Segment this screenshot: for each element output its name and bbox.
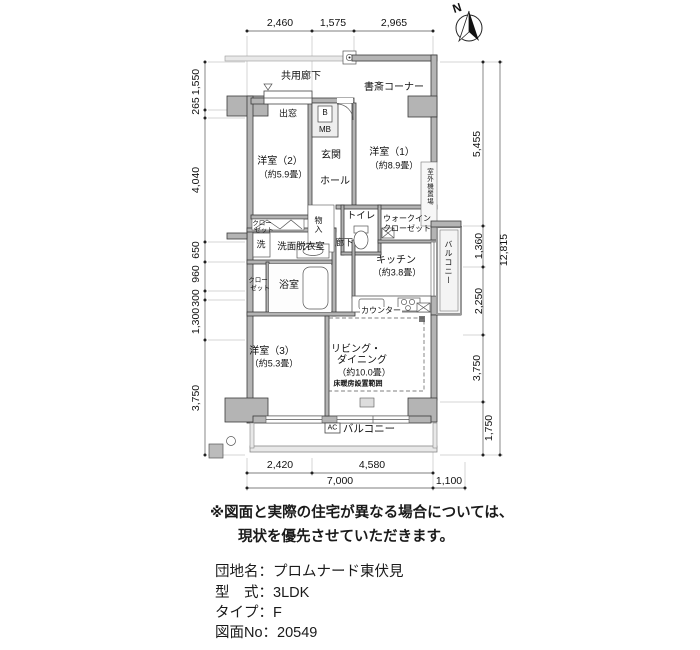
fridge-box-icon [417,303,430,322]
dim-left-5: 960 [191,265,202,283]
room3-size-label: （約5.3畳） [250,360,299,369]
controller-box [360,398,374,407]
washer-label: 洗 [256,241,265,250]
floorplan-page: N 共用廊下 書斎コーナー 出窓 B MB 洋室（2） （約5.9畳） 玄関 ホ… [0,0,700,650]
washroom-label: 洗面脱衣室 [277,242,325,252]
dim-top-3: 2,965 [381,18,407,29]
dim-top-2: 1,575 [320,18,346,29]
entry-marker-icon [264,84,272,90]
kitchen-size-label: （約3.8畳） [373,269,422,278]
balcony-ac-label: AC [328,425,338,432]
compass-icon [456,11,482,41]
dim-bottom-2: 4,580 [359,460,385,471]
bay-window-label: 出窓 [279,110,297,119]
study-corner-label: 書斎コーナー [364,83,424,93]
dim-right-5: 1,750 [484,415,495,441]
closet-a-label-2: ゼット [254,228,274,235]
dim-left-7: 1,300 [191,308,202,334]
disclaimer-line-2: 現状を優先させていただきます。 [238,530,454,545]
dim-bottom-total: 7,000 [327,476,353,487]
closet-b-label-2: ゼット [250,286,270,293]
room2-size-label: （約5.9畳） [259,171,308,180]
toilet-fixture [354,226,368,249]
title-estate-name: 団地名：プロムナード東伏見 [215,565,404,580]
outdoor-unit-label: 室外機置場 [425,168,432,206]
hall-label: ホール [320,177,350,187]
closet-b-label-1: クロー [248,278,268,285]
dim-left-4: 650 [191,241,202,259]
disclaimer-line-1: ※図面と実際の住宅が異なる場合については、 [210,506,513,521]
dim-left-1: 1,550 [191,69,202,95]
dim-left-2: 265 [191,97,202,115]
title-layout-type: 型 式：3LDK [215,586,309,601]
wic-label-1: ウォークイン [383,215,431,223]
wic-label-2: クローゼット [383,225,431,233]
dim-right-3: 2,250 [474,288,485,314]
bottom-balcony [209,423,437,458]
dim-right-2: 1,360 [474,233,485,259]
dim-right-1: 5,455 [472,131,483,157]
dim-right-4: 3,750 [472,355,483,381]
living-size-label: （約10.0畳） [337,369,391,378]
dim-left-8: 3,750 [191,385,202,411]
room1-size-label: （約8.9畳） [370,162,419,171]
meter-box-label: MB [319,126,331,134]
balcony-bottom-label: バルコニー [343,424,395,435]
floor-heating-label: 床暖房設置範囲 [334,381,383,388]
balcony-side-label: バルコニー [444,240,452,285]
living-label-2: ダイニング [337,356,387,366]
dim-left-3: 4,040 [191,167,202,193]
counter-label: カウンター [360,307,402,315]
room2-label: 洋室（2） [257,157,303,167]
bay-window [264,91,312,104]
room1-label: 洋室（1） [369,148,415,158]
dim-right-total: 12,815 [499,234,510,266]
living-label-1: リビング・ [331,345,381,355]
meter-box-b-label: B [322,109,327,117]
title-drawing-no: 図面No：20549 [215,626,317,641]
bathroom-label: 浴室 [279,281,299,291]
floorplan-drawing [0,0,700,650]
room3-label: 洋室（3） [249,347,295,357]
dim-top-1: 2,460 [267,18,293,29]
toilet-label: トイレ [347,211,376,221]
dim-bottom-right: 1,100 [436,476,462,487]
kitchen-label: キッチン [376,256,416,266]
storage-label: 物入 [314,216,322,234]
dim-left-6: 300 [191,289,202,307]
dim-bottom-1: 2,420 [267,460,293,471]
entrance-door [337,98,353,120]
common-corridor-label: 共用廊下 [281,72,321,82]
corridor-label: 廊下 [335,239,353,248]
entrance-label: 玄関 [321,151,341,161]
title-plan-type: タイプ：F [215,606,282,621]
